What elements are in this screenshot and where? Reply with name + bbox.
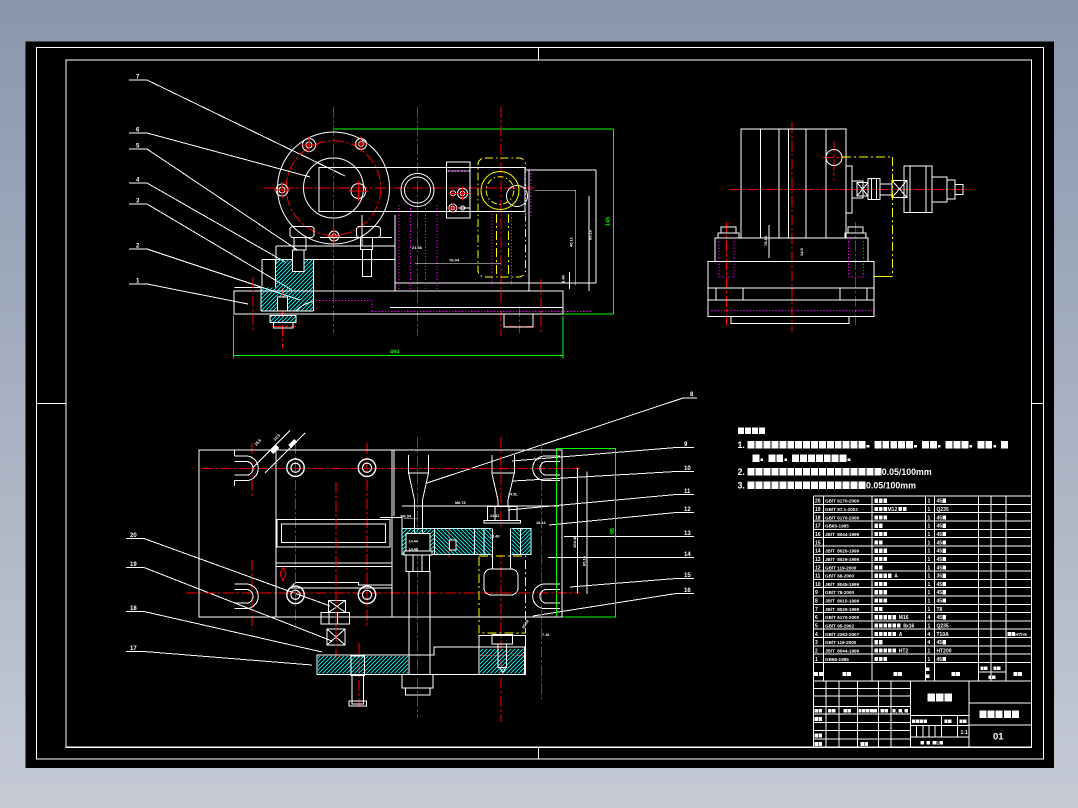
svg-text:2263-2007: 2263-2007 xyxy=(837,632,859,637)
svg-text:8044-1999: 8044-1999 xyxy=(837,532,859,537)
svg-text:8029-1999: 8029-1999 xyxy=(837,607,859,612)
svg-text:45: 45 xyxy=(937,565,943,571)
svg-text:GB/T: GB/T xyxy=(825,624,836,629)
svg-text:1: 1 xyxy=(928,599,931,605)
svg-text:0.05/100mm: 0.05/100mm xyxy=(882,467,932,477)
svg-text:HT200: HT200 xyxy=(937,648,952,654)
svg-text:1: 1 xyxy=(928,582,931,588)
svg-text:1: 1 xyxy=(928,549,931,555)
svg-text:45: 45 xyxy=(937,499,943,505)
svg-text:T10A: T10A xyxy=(937,632,950,638)
svg-text:0.05/100mm: 0.05/100mm xyxy=(866,481,916,491)
svg-text:GB65-1985: GB65-1985 xyxy=(825,657,849,662)
svg-text:A: A xyxy=(894,574,898,580)
svg-text:2: 2 xyxy=(815,648,818,654)
svg-text:4: 4 xyxy=(928,615,931,621)
svg-text:85.16: 85.16 xyxy=(582,555,587,566)
svg-text:GB/T: GB/T xyxy=(825,632,836,637)
svg-text:8010-1999: 8010-1999 xyxy=(837,599,859,604)
svg-text:1: 1 xyxy=(928,499,931,505)
svg-text:119-2000: 119-2000 xyxy=(837,565,857,570)
svg-text:45: 45 xyxy=(937,540,943,546)
svg-text:8044-1999: 8044-1999 xyxy=(837,648,859,653)
svg-text:104.48: 104.48 xyxy=(572,535,577,548)
svg-text:21.66: 21.66 xyxy=(412,245,423,250)
svg-text:6170-2000: 6170-2000 xyxy=(837,515,859,520)
svg-text:45.11: 45.11 xyxy=(569,236,574,247)
svg-text:1: 1 xyxy=(928,532,931,538)
svg-text:16: 16 xyxy=(815,532,821,538)
svg-text:4: 4 xyxy=(928,632,931,638)
svg-text:1: 1 xyxy=(928,590,931,596)
svg-text:Q235: Q235 xyxy=(937,507,949,513)
svg-text:GB65-1985: GB65-1985 xyxy=(825,524,849,529)
svg-text:45: 45 xyxy=(937,582,943,588)
svg-text:8x16: 8x16 xyxy=(903,624,914,630)
svg-text:GB/T: GB/T xyxy=(825,590,836,595)
svg-text:4: 4 xyxy=(928,640,931,646)
svg-text:18: 18 xyxy=(815,515,821,521)
svg-text:18.48: 18.48 xyxy=(490,535,500,539)
svg-text:H7/r6: H7/r6 xyxy=(1015,632,1027,637)
svg-text:76.44: 76.44 xyxy=(449,258,460,263)
svg-text:18.14: 18.14 xyxy=(536,521,546,525)
svg-text:17: 17 xyxy=(815,524,821,530)
svg-text:8: 8 xyxy=(815,599,818,605)
svg-text:14.5: 14.5 xyxy=(799,247,804,256)
svg-text:JB/T: JB/T xyxy=(825,549,835,554)
svg-text:JB/T: JB/T xyxy=(825,607,835,612)
svg-text:68-2000: 68-2000 xyxy=(837,574,854,579)
svg-text:14.5L: 14.5L xyxy=(508,493,518,497)
svg-text:1: 1 xyxy=(928,515,931,521)
svg-text:1: 1 xyxy=(928,624,931,630)
svg-text:JB/T: JB/T xyxy=(825,648,835,653)
svg-text:M8.78: M8.78 xyxy=(455,501,466,505)
svg-text:1: 1 xyxy=(928,565,931,571)
svg-text:GB/T: GB/T xyxy=(825,499,836,504)
svg-text:A: A xyxy=(899,632,903,638)
svg-text:75.18: 75.18 xyxy=(763,235,768,246)
svg-text:M16: M16 xyxy=(899,615,909,621)
svg-text:35: 35 xyxy=(937,574,943,580)
svg-text:JB/T: JB/T xyxy=(825,582,835,587)
svg-text:6170-2000: 6170-2000 xyxy=(837,615,859,620)
svg-text:78-2000: 78-2000 xyxy=(837,590,854,595)
svg-text:12: 12 xyxy=(815,565,821,571)
svg-text:,: , xyxy=(896,709,897,714)
svg-text:8.44: 8.44 xyxy=(561,274,566,283)
svg-text:1: 1 xyxy=(928,607,931,613)
svg-text:1: 1 xyxy=(928,524,931,530)
svg-text:8029-1999: 8029-1999 xyxy=(837,557,859,562)
svg-text:5: 5 xyxy=(815,624,818,630)
svg-text:1: 1 xyxy=(928,657,931,663)
svg-text:45: 45 xyxy=(937,524,943,530)
svg-text:14: 14 xyxy=(815,549,821,555)
svg-text:01: 01 xyxy=(993,732,1004,743)
svg-text:45: 45 xyxy=(937,590,943,596)
svg-text:GB/T: GB/T xyxy=(825,574,836,579)
svg-text:494: 494 xyxy=(390,350,400,356)
svg-text:3: 3 xyxy=(815,640,818,646)
svg-text:45: 45 xyxy=(937,532,943,538)
svg-text:7.18: 7.18 xyxy=(542,633,549,637)
svg-text:10: 10 xyxy=(815,582,821,588)
svg-text:45: 45 xyxy=(937,515,943,521)
svg-text:13: 13 xyxy=(815,557,821,563)
svg-text:45: 45 xyxy=(937,640,943,646)
svg-text:GB/T: GB/T xyxy=(825,615,836,620)
svg-text:HT2: HT2 xyxy=(899,648,909,654)
svg-text:7: 7 xyxy=(815,607,818,613)
svg-text:,: , xyxy=(902,709,903,714)
svg-text:145: 145 xyxy=(606,217,612,226)
svg-text:JB/T: JB/T xyxy=(825,557,835,562)
svg-text:95-2002: 95-2002 xyxy=(837,624,854,629)
svg-text:1: 1 xyxy=(815,657,818,663)
svg-text:45: 45 xyxy=(937,599,943,605)
svg-text:6: 6 xyxy=(815,615,818,621)
svg-text:3.: 3. xyxy=(738,481,745,491)
svg-text:6170-2000: 6170-2000 xyxy=(837,499,859,504)
svg-text:1:1: 1:1 xyxy=(961,730,968,736)
svg-text:14.42: 14.42 xyxy=(490,514,500,518)
svg-text:1: 1 xyxy=(928,507,931,513)
svg-text:GB/T: GB/T xyxy=(825,507,836,512)
svg-text:JB/T: JB/T xyxy=(825,599,835,604)
svg-text:1: 1 xyxy=(928,574,931,580)
svg-text:GB/T: GB/T xyxy=(825,640,836,645)
svg-text:GB/T: GB/T xyxy=(825,565,836,570)
svg-text:45: 45 xyxy=(937,657,943,663)
svg-text:119-2000: 119-2000 xyxy=(837,640,857,645)
svg-text:8026-1999: 8026-1999 xyxy=(837,549,859,554)
svg-text:T8: T8 xyxy=(937,607,943,613)
svg-text:45: 45 xyxy=(937,549,943,555)
svg-text:1: 1 xyxy=(937,741,940,746)
svg-text:11: 11 xyxy=(815,574,821,580)
svg-text:M6.94: M6.94 xyxy=(401,515,412,519)
svg-text:15: 15 xyxy=(815,540,821,546)
svg-text:14.44: 14.44 xyxy=(409,540,419,544)
svg-text:95: 95 xyxy=(610,528,616,534)
svg-text:Q235: Q235 xyxy=(937,624,949,630)
svg-text:2.: 2. xyxy=(738,467,745,477)
svg-text:4: 4 xyxy=(815,632,818,638)
svg-text:85.16: 85.16 xyxy=(588,229,593,240)
svg-text:97.1-2002: 97.1-2002 xyxy=(837,507,858,512)
svg-text:JB/T: JB/T xyxy=(825,532,835,537)
svg-text:20: 20 xyxy=(815,499,821,505)
svg-text:45: 45 xyxy=(937,557,943,563)
svg-text:1.: 1. xyxy=(738,440,745,450)
svg-text:GB/T: GB/T xyxy=(825,515,836,520)
svg-text:8045-1999: 8045-1999 xyxy=(837,582,859,587)
svg-text:9: 9 xyxy=(815,590,818,596)
svg-text:M12: M12 xyxy=(888,507,898,513)
svg-text:1: 1 xyxy=(928,540,931,546)
svg-text:19: 19 xyxy=(815,507,821,513)
svg-text:1: 1 xyxy=(928,557,931,563)
svg-text:1: 1 xyxy=(928,648,931,654)
svg-text:45: 45 xyxy=(937,615,943,621)
